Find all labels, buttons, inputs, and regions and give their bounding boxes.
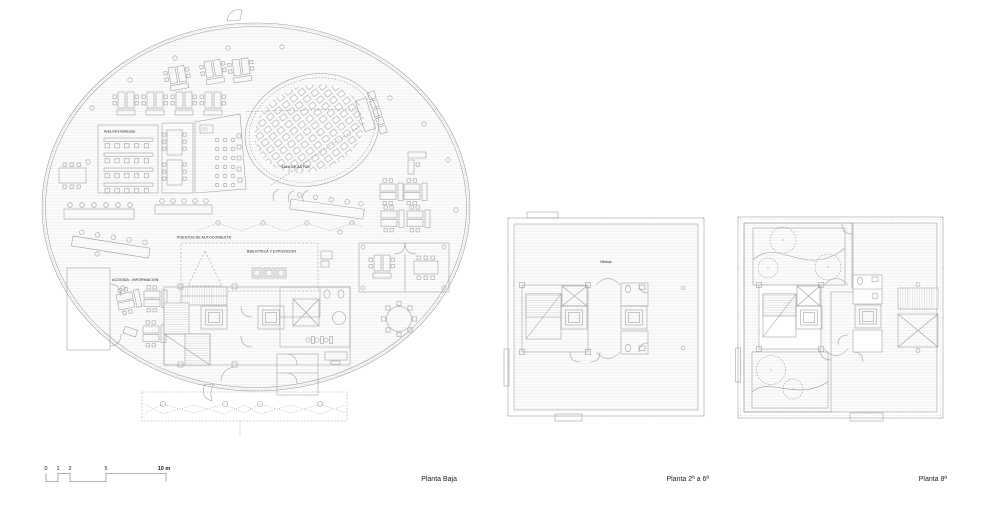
caption-planta-2-6: Planta 2ª a 6ª xyxy=(666,476,709,483)
building-shell xyxy=(42,10,470,401)
stair xyxy=(763,294,796,316)
stair xyxy=(526,294,561,317)
restrooms xyxy=(853,275,882,304)
room-label-aula: Aula informatizada xyxy=(104,130,135,134)
caption-planta-baja: Planta Baja xyxy=(421,476,457,483)
roof-fin xyxy=(227,10,242,21)
entrance-canopy xyxy=(142,392,347,438)
architectural-drawing-sheet: SALA DE ACTOS Aula informatizada xyxy=(0,0,1000,520)
stair xyxy=(185,334,210,365)
floor-plans-svg: SALA DE ACTOS Aula informatizada xyxy=(0,0,1000,520)
caption-planta-8: Planta 8ª xyxy=(919,476,948,483)
room-label-sala-de-actos: SALA DE ACTOS xyxy=(281,165,310,169)
planta-8-plan xyxy=(736,217,944,421)
zone-label-puestos: PUESTOS DE AUTOCONSULTA xyxy=(177,236,232,240)
scale-bar: 0 1 2 5 10 m xyxy=(44,466,170,482)
scale-tick-1: 1 xyxy=(56,466,59,472)
scale-tick-10m: 10 m xyxy=(158,466,171,472)
zone-label-acogida: ACOGIDA - INFORMACION xyxy=(112,278,159,282)
room-label-oficinas: Oficinas xyxy=(600,260,612,264)
scale-tick-5: 5 xyxy=(104,466,107,472)
planta-baja-plan: SALA DE ACTOS Aula informatizada xyxy=(42,10,470,438)
stair xyxy=(164,303,189,334)
planta-2-6-plan: Oficinas xyxy=(504,212,704,421)
zone-label-biblioteca: BIBLIOTECA Y EXPOSICION xyxy=(247,250,296,254)
scale-tick-2: 2 xyxy=(68,466,71,472)
scale-tick-0: 0 xyxy=(44,466,47,472)
